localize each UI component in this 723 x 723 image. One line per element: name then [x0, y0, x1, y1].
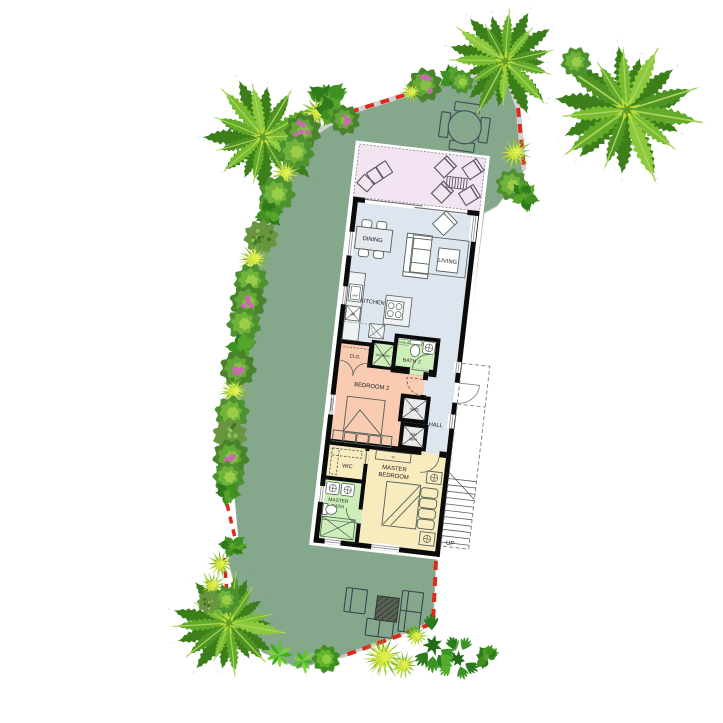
svg-text:A/U: A/U — [410, 432, 417, 437]
svg-text:SINK: SINK — [352, 293, 359, 298]
svg-text:TV: TV — [391, 455, 395, 459]
svg-text:WIC: WIC — [342, 463, 353, 470]
svg-text:W/D: W/D — [410, 407, 419, 413]
svg-text:UP: UP — [445, 540, 454, 548]
